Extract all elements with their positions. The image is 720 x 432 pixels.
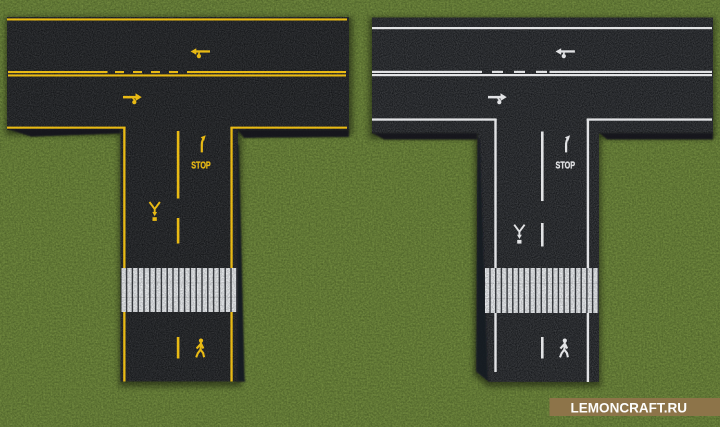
svg-text:LEMONCRAFT.RU: LEMONCRAFT.RU <box>571 400 688 415</box>
